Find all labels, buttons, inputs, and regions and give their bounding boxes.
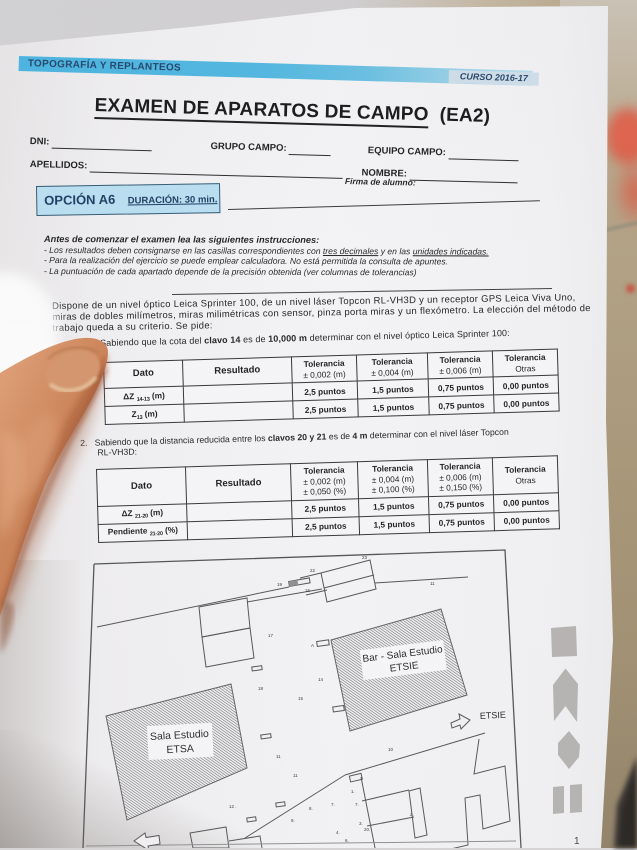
svg-text:9.: 9. (291, 818, 295, 823)
svg-text:1.: 1. (351, 789, 355, 794)
svg-text:ETSA: ETSA (166, 743, 194, 756)
svg-text:14: 14 (318, 677, 324, 682)
svg-text:11: 11 (293, 773, 298, 778)
svg-text:ETSIE: ETSIE (480, 710, 507, 721)
svg-text:4.: 4. (336, 830, 340, 835)
svg-text:20.: 20. (364, 827, 370, 832)
svg-text:16: 16 (305, 588, 311, 593)
svg-text:18: 18 (258, 686, 264, 691)
svg-text:3.: 3. (359, 821, 363, 826)
svg-text:2.: 2. (410, 812, 414, 817)
svg-text:7.: 7. (355, 802, 359, 807)
svg-text:7.: 7. (331, 802, 335, 807)
svg-text:12 .: 12 . (229, 804, 237, 809)
svg-text:10: 10 (388, 747, 394, 752)
svg-text:22: 22 (310, 568, 316, 573)
svg-text:19: 19 (277, 582, 283, 587)
svg-text:8.: 8. (309, 806, 313, 811)
svg-text:6.: 6. (345, 838, 349, 843)
svg-text:17: 17 (268, 633, 274, 638)
svg-text:11: 11 (430, 581, 435, 586)
svg-text:23: 23 (362, 555, 368, 560)
svg-text:11: 11 (276, 754, 281, 759)
svg-text:15: 15 (298, 696, 304, 701)
svg-text:A: A (311, 643, 314, 648)
